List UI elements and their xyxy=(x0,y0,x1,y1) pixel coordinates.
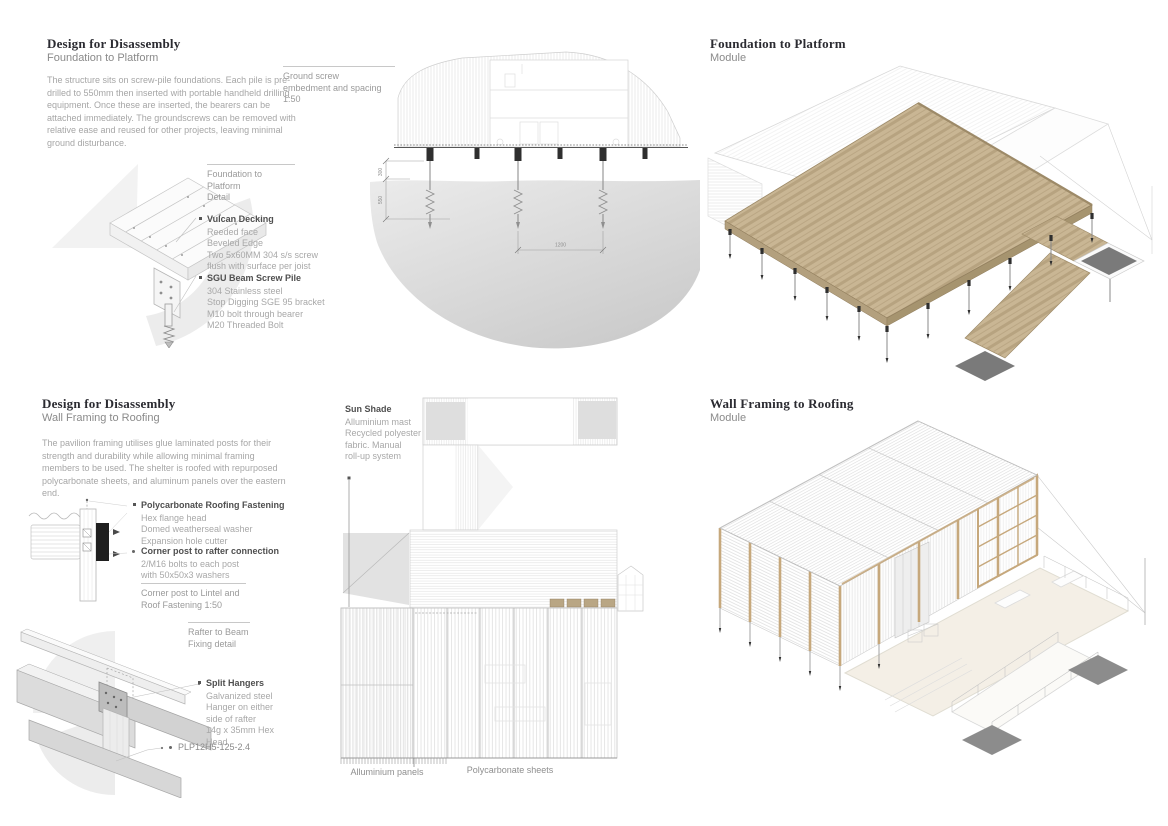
legend-title: SGU Beam Screw Pile xyxy=(207,273,325,285)
caption-rule xyxy=(188,622,250,623)
legend-line: Beveled Edge xyxy=(207,238,318,250)
legend-line: side of rafter xyxy=(206,714,274,726)
legend-line: Hanger on either xyxy=(206,702,274,714)
presentation-sheet: Design for Disassembly Foundation to Pla… xyxy=(0,0,1168,826)
bullet-icon xyxy=(169,746,172,749)
dim-300: 300 xyxy=(378,168,384,177)
rafter-caption: Rafter to Beam Fixing detail xyxy=(188,622,250,650)
caption-line: Detail xyxy=(207,192,295,204)
dim-1200: 1200 xyxy=(555,243,566,249)
bullet-icon xyxy=(198,681,201,684)
caption-rule xyxy=(207,164,295,165)
legend-line: Galvanized steel xyxy=(206,691,274,703)
caption-line: Foundation to Platform xyxy=(207,169,295,192)
bullet-icon xyxy=(133,503,136,506)
legend-line: Two 5x60MM 304 s/s screw xyxy=(207,250,318,262)
legend-line: 2/M16 bolts to each post xyxy=(141,559,279,571)
dim-550: 550 xyxy=(378,196,384,205)
caption-line: Fixing detail xyxy=(188,639,250,651)
legend-title: Split Hangers xyxy=(206,678,274,690)
legend-split-hangers: Split Hangers Galvanized steel Hanger on… xyxy=(206,678,274,748)
caption-line: Rafter to Beam xyxy=(188,627,250,639)
caption-rule xyxy=(141,583,246,584)
roofing-module-title: Wall Framing to Roofing xyxy=(710,396,854,411)
legend-title: Corner post to rafter connection xyxy=(141,546,279,558)
bullet-icon xyxy=(199,217,202,220)
pavilion-elevation-drawing xyxy=(335,385,665,775)
part-number-label: PLP12H5-125-2.4 xyxy=(178,742,250,754)
foundation-detail-caption: Foundation to Platform Detail xyxy=(207,164,295,204)
legend-line: flush with surface per joist xyxy=(207,261,318,273)
legend-line: M10 bolt through bearer xyxy=(207,309,325,321)
legend-line: 304 Stainless steel xyxy=(207,286,325,298)
pavilion-module-drawing xyxy=(700,418,1160,810)
legend-title: Vulcan Decking xyxy=(207,214,318,226)
roofing-body-text: The pavilion framing utilises glue lamin… xyxy=(42,437,290,500)
foundation-title: Design for Disassembly xyxy=(47,36,180,51)
legend-line: with 50x50x3 washers xyxy=(141,570,279,582)
legend-line: 14g x 35mm Hex xyxy=(206,725,274,737)
legend-line: Hex flange head xyxy=(141,513,285,525)
legend-vulcan-decking: Vulcan Decking Reeded face Beveled Edge … xyxy=(207,214,318,273)
legend-line: M20 Threaded Bolt xyxy=(207,320,325,332)
elevation-label-polycarbonate: Polycarbonate sheets xyxy=(445,765,575,776)
roofing-heading-block: Design for Disassembly Wall Framing to R… xyxy=(42,396,175,425)
foundation-subtitle: Foundation to Platform xyxy=(47,51,180,65)
foundation-heading-block: Design for Disassembly Foundation to Pla… xyxy=(47,36,180,65)
platform-module-drawing xyxy=(700,58,1160,390)
foundation-body-text: The structure sits on screw-pile foundat… xyxy=(47,74,305,150)
legend-corner-post-connection: Corner post to rafter connection 2/M16 b… xyxy=(141,546,279,582)
legend-line: Reeded face xyxy=(207,227,318,239)
foundation-module-title: Foundation to Platform xyxy=(710,36,846,51)
legend-sgu-screw-pile: SGU Beam Screw Pile 304 Stainless steel … xyxy=(207,273,325,332)
roofing-subtitle: Wall Framing to Roofing xyxy=(42,411,175,425)
legend-line: Domed weatherseal washer xyxy=(141,524,285,536)
legend-polycarbonate-fastening: Polycarbonate Roofing Fastening Hex flan… xyxy=(141,500,285,547)
bullet-icon xyxy=(199,276,202,279)
part-number-text: PLP12H5-125-2.4 xyxy=(178,742,250,754)
elevation-label-aluminium: Alluminium panels xyxy=(342,767,432,778)
rafter-beam-detail-drawing xyxy=(15,598,215,798)
roofing-title: Design for Disassembly xyxy=(42,396,175,411)
ground-screw-section-drawing: 300 550 1200 xyxy=(370,30,700,375)
legend-title: Polycarbonate Roofing Fastening xyxy=(141,500,285,512)
bullet-icon xyxy=(132,550,135,553)
legend-line: Stop Digging SGE 95 bracket xyxy=(207,297,325,309)
